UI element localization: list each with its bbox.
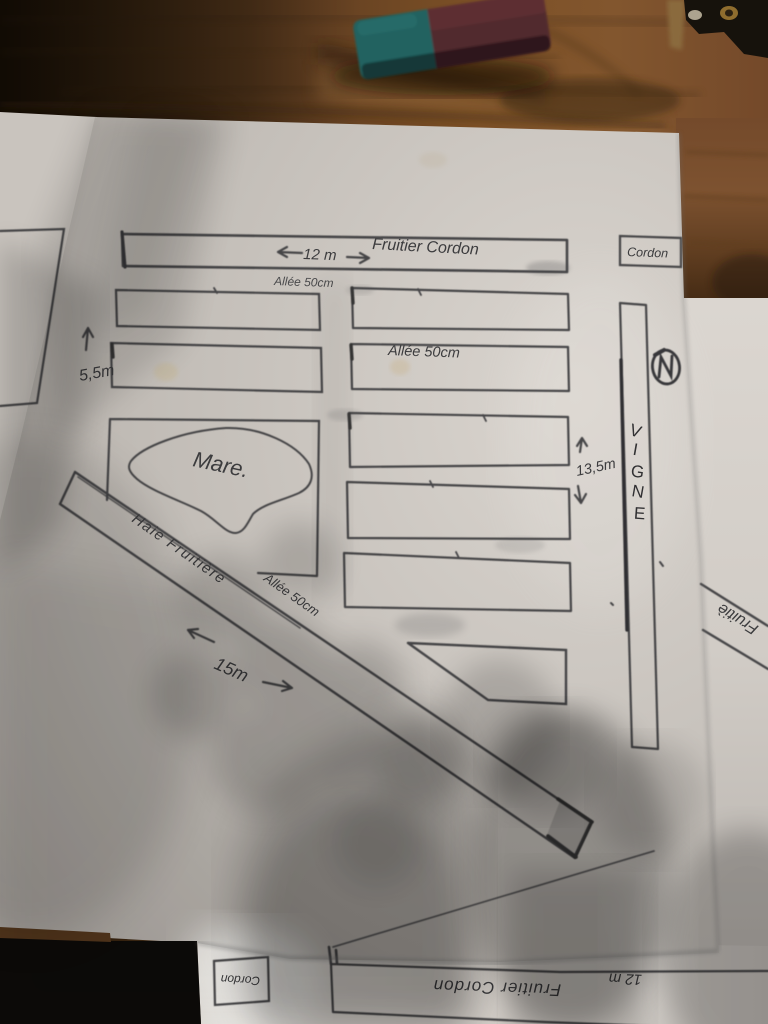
svg-text:Cordon: Cordon (627, 245, 669, 260)
svg-text:G: G (630, 461, 646, 482)
svg-text:12 m: 12 m (303, 246, 337, 264)
svg-text:Allée 50cm: Allée 50cm (387, 343, 460, 362)
svg-text:E: E (633, 504, 646, 524)
